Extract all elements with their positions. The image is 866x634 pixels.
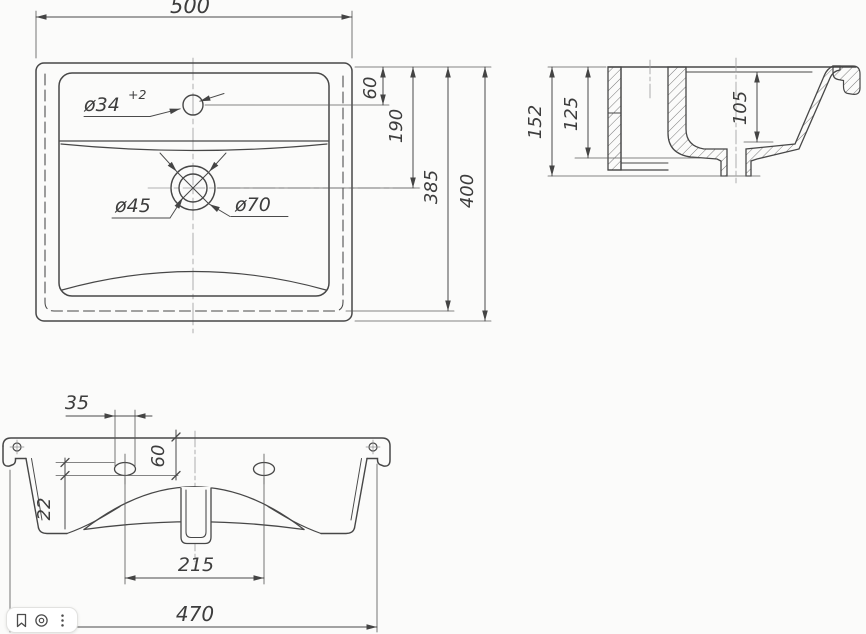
label-back-height: 125 [561,97,582,131]
label-overall-width: 500 [170,0,210,18]
label-slot-width: 22 [34,498,55,521]
label-slot-length: 35 [65,392,89,414]
front-view: 35 60 22 215 470 [3,392,390,632]
label-slot-spacing: 215 [178,554,214,576]
section-back-strip [608,67,621,170]
bookmark-button[interactable] [13,612,29,628]
label-bowl-depth: 105 [730,91,751,125]
image-search-button[interactable] [34,612,50,628]
drawing-page: 500 60 190 385 400 ø34 +2 ø45 ø70 [0,0,866,634]
label-faucet-tolerance: +2 [128,87,146,102]
label-overall-height: 152 [525,105,546,139]
section-left-shell [668,67,727,176]
section-rim-curl [833,66,860,94]
label-faucet-offset: 60 [360,77,381,100]
label-drain-outer: ø70 [234,194,271,216]
viewer-toolbar [6,607,78,633]
bowl-front-arch [62,272,326,291]
more-button[interactable] [55,612,71,628]
front-rim-left-end [3,446,26,466]
fixing-slots [115,463,275,476]
label-inner-depth: 385 [421,170,442,204]
bookmark-icon [15,613,28,628]
label-drain-offset: 190 [386,109,407,143]
section-right-shell [746,66,840,176]
label-faucet-hole: ø34 [83,94,120,116]
camera-lens-icon [34,613,49,628]
label-overall-depth: 400 [457,174,478,208]
deck-edge-curve [61,144,327,151]
drain-box-mask [181,487,212,544]
drawing-canvas: 500 60 190 385 400 ø34 +2 ø45 ø70 [0,0,866,634]
section-view: 152 125 105 [525,58,860,183]
label-slot-offset: 60 [148,445,169,468]
front-rim-outline [3,438,390,466]
label-drain-inner: ø45 [114,195,151,217]
label-base-width: 470 [176,602,214,626]
extension-lines [36,11,491,321]
top-view: 500 60 190 385 400 ø34 +2 ø45 ø70 [36,0,491,333]
kebab-menu-icon [60,613,65,628]
